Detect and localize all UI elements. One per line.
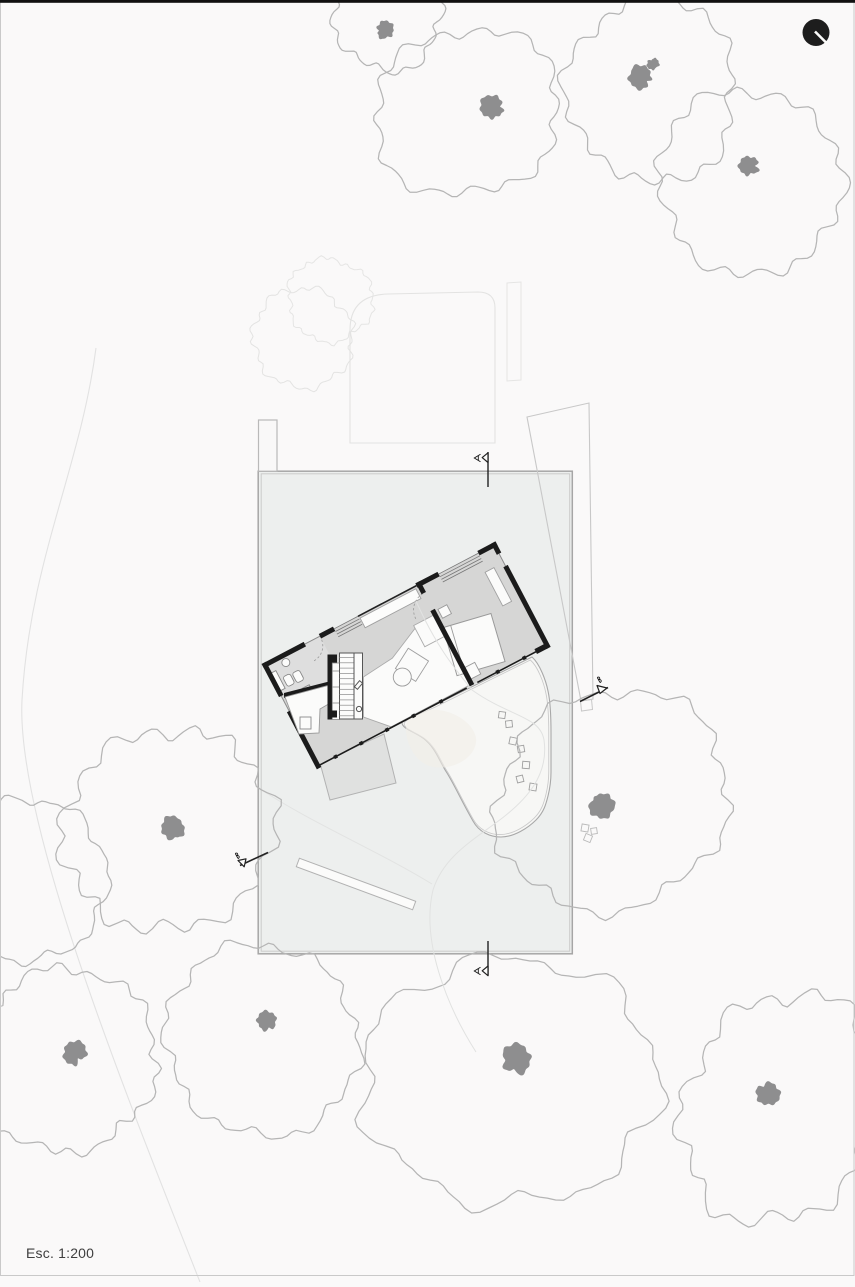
svg-text:Esc. 1:200: Esc. 1:200 bbox=[26, 1245, 94, 1261]
